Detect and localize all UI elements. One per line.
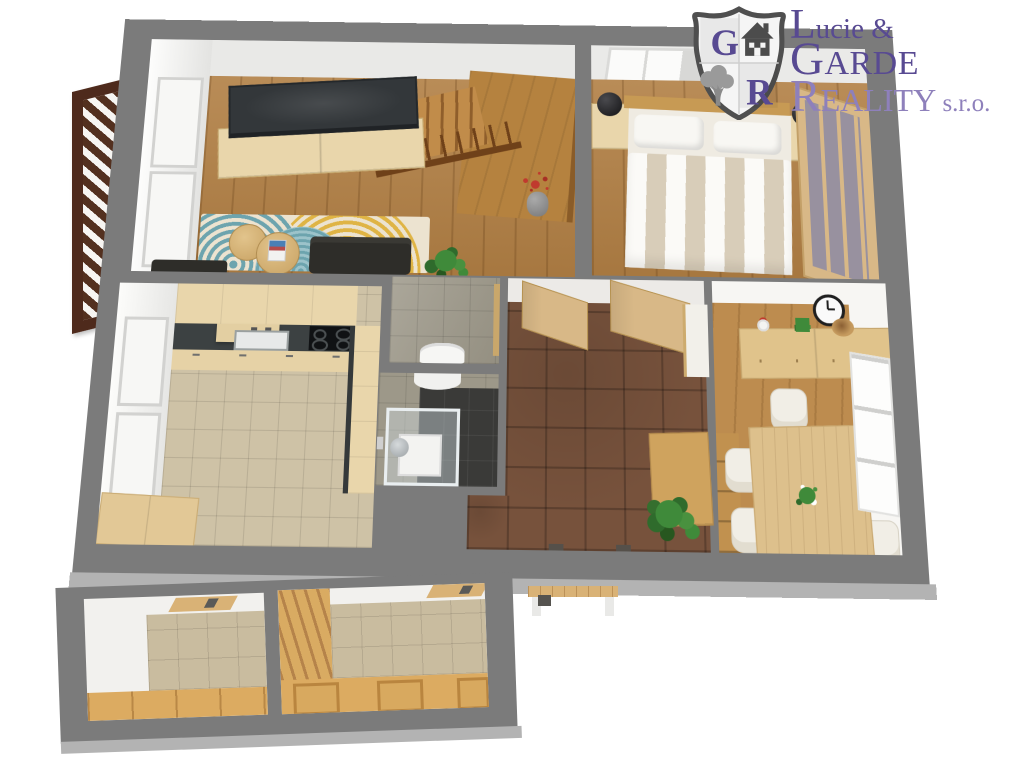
burner	[312, 339, 329, 351]
table-flowers	[798, 487, 815, 504]
hallway-floor-ext	[467, 495, 510, 550]
hall-cabinet	[682, 304, 709, 377]
tv	[229, 76, 419, 138]
agency-name-line1: Lucie &	[790, 10, 1024, 44]
striped-duvet	[625, 153, 792, 276]
red-plant	[515, 171, 554, 200]
bench-leg	[605, 597, 614, 616]
agency-name-line3: REALITY s.r.o.	[790, 79, 1024, 120]
living-window	[141, 171, 196, 268]
sofa-corner	[151, 259, 228, 272]
sideboard-bowl	[831, 318, 854, 336]
hall-plant	[655, 500, 683, 528]
living-window	[150, 77, 204, 168]
dining-room	[712, 281, 903, 555]
bed	[625, 108, 792, 275]
upper-cabinets	[175, 283, 358, 325]
stairwell-doorframe	[457, 677, 489, 710]
hallway	[391, 277, 711, 553]
stairwell-doorframe	[293, 682, 340, 714]
entry-bench	[528, 586, 618, 618]
agency-name-line2: GARDE	[790, 44, 1024, 79]
stairwell-left-woodstrip	[87, 687, 268, 721]
base-cabinets	[171, 349, 355, 372]
sofa	[309, 236, 412, 274]
kitchen-window	[108, 412, 162, 506]
agency-name-suffix: s.r.o.	[936, 90, 990, 117]
red-plant-leaves	[531, 180, 540, 189]
dining-shelves	[849, 352, 900, 518]
building-stairwell	[55, 572, 517, 744]
kitchen-sink	[233, 330, 289, 351]
shield-icon: G R	[688, 6, 790, 120]
agency-name: Lucie & GARDE REALITY s.r.o.	[790, 10, 1024, 120]
stairwell-room-right	[278, 583, 489, 714]
kitchen-low-cabinet	[96, 492, 199, 548]
hall-threshold	[616, 545, 631, 552]
shield-letter-r: R	[746, 72, 773, 113]
bedside-lamp	[597, 92, 622, 116]
living-room	[131, 39, 575, 277]
stairwell-right-tiles	[330, 599, 487, 678]
shield-letter-g: G	[711, 22, 740, 63]
bathroom-door-handle	[377, 437, 384, 450]
magazine	[267, 240, 286, 262]
stairwell-right-shelf	[426, 583, 488, 598]
pillow	[713, 121, 781, 156]
bench-box	[538, 595, 551, 606]
stairwell-room-left	[84, 593, 268, 721]
sideboard-plant	[795, 318, 810, 332]
stairwell-left-shelf	[168, 596, 238, 612]
stairwell-doorframe	[377, 679, 424, 713]
stairwell-left-tiles	[146, 611, 267, 691]
agency-shield-logo: G R	[688, 6, 790, 120]
floor-plan-render: G R Lucie & GARDE REALITY s.r.o.	[0, 0, 1024, 768]
plant-pot	[527, 192, 549, 217]
hall-threshold	[549, 544, 564, 551]
sideboard-vase	[757, 319, 770, 331]
agency-name-reality: REALITY	[790, 82, 936, 118]
kitchen	[96, 283, 382, 548]
stairwell-right-woodstrip	[281, 673, 489, 714]
wardrobe-sliding-panels	[805, 100, 870, 280]
kitchen-window	[117, 316, 169, 406]
